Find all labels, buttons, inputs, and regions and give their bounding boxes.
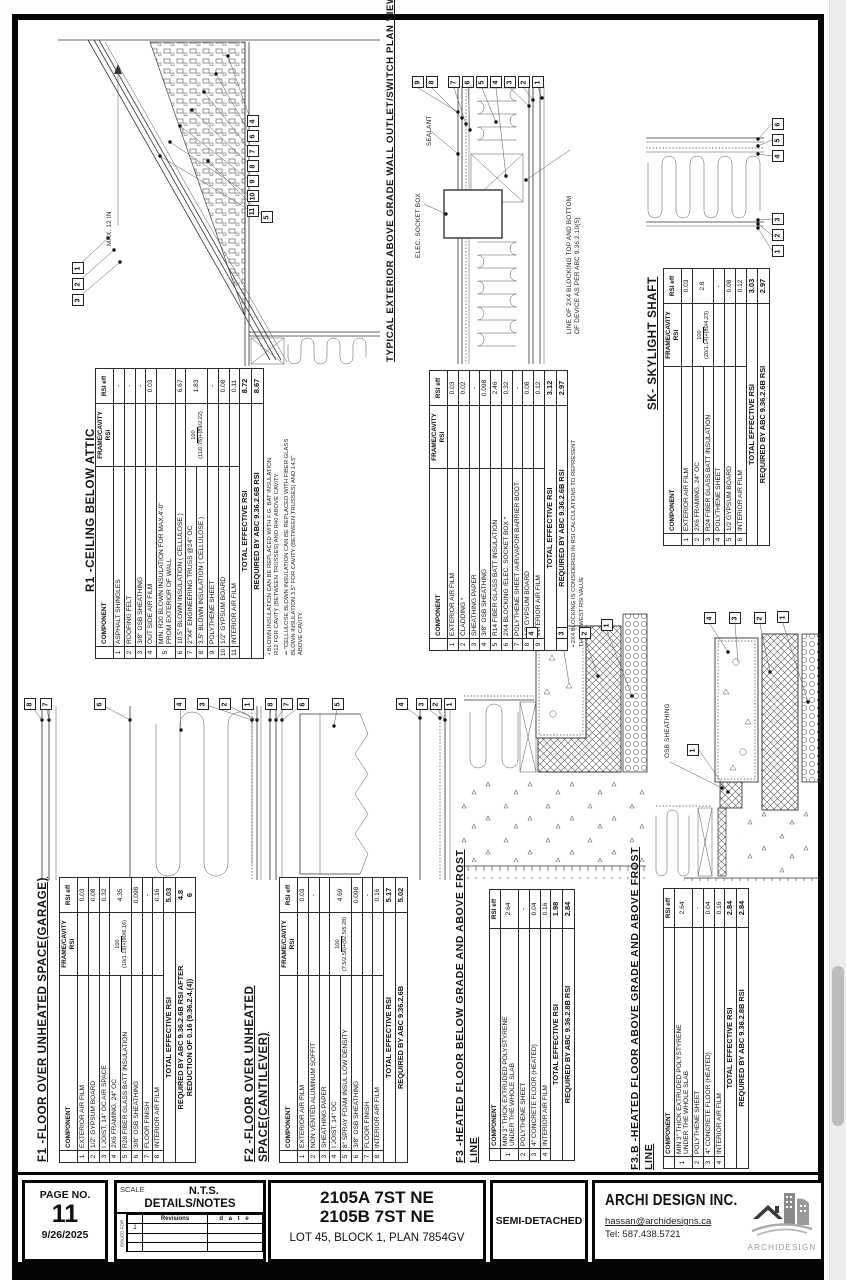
table-header-cell: COMPONENT (430, 469, 448, 639)
table-cell (480, 406, 491, 469)
table-cell: NON VENTED ALUMINUM SOFFIT (308, 976, 319, 1151)
table-cell: 5 (491, 639, 502, 651)
table-cell: POLYTHENE SHEET (693, 928, 704, 1157)
table-cell: POLYTHENE SHEET /AIR/VAPOR BARRIER BOOT (512, 469, 523, 639)
callout-2: 2 (219, 698, 231, 710)
table-cell: 1 (500, 1149, 519, 1161)
table-cell: FLOOR FINISH (362, 976, 373, 1151)
table-footer-value: 3.03 (746, 269, 758, 304)
callout-1: 1 (687, 744, 699, 756)
table-cell: 0.12 (534, 371, 545, 406)
table-header-cell (430, 639, 448, 651)
table-cell: OUT SIDE AIR FILM (146, 467, 157, 647)
table-cell: EXTERIOR AIR FILM (78, 976, 89, 1151)
table-footer-label: TOTAL EFFECTIVE RSI (725, 928, 737, 1169)
callout-10: 10 (247, 190, 259, 202)
table-header-cell: COMPONENT (96, 467, 114, 647)
table-footer-label: REQUIRED BY ABC 9.36.2.6B RSI (252, 404, 264, 659)
table-cell: 0.16 (153, 878, 164, 913)
table-footer-value: 1.98 (551, 890, 563, 929)
table-footer-label: TOTAL EFFECTIVE RSI (240, 404, 252, 659)
rev-date-cell (208, 1224, 263, 1233)
table-header-cell: FRAME/CAVITY RSI (60, 913, 78, 976)
table-cell: 4 (110, 1151, 121, 1163)
table-cell: 1 (114, 647, 125, 659)
table-cell: 0.098 (351, 878, 362, 913)
table-cell: 0.16 (373, 878, 384, 913)
f3b-table: COMPONENTRSI eff1MIN 3" THICK EXTRUDED P… (663, 888, 749, 1169)
assembly-table: COMPONENTRSI eff1MIN 3" THICK EXTRUDED P… (663, 888, 749, 1169)
table-cell: 5 (157, 647, 176, 659)
table-cell: - (714, 269, 725, 304)
table-cell: 5 (121, 1151, 132, 1163)
callout-7: 7 (247, 145, 259, 157)
table-footer-value: 8.67 (252, 369, 264, 404)
table-header-cell (490, 1149, 501, 1161)
scrollbar-thumb[interactable] (832, 966, 844, 1126)
table-cell: 0.03 (448, 371, 459, 406)
table-cell: 0.04 (529, 890, 540, 929)
table-cell: 2.64 (500, 890, 519, 929)
table-cell: 7 (362, 1151, 373, 1163)
table-cell: 8 (197, 647, 208, 659)
table-cell: INTERIOR AIR FILM (735, 367, 746, 534)
table-footer-label: REQUIRED BY ABC 9.36.2.6B RSI (758, 304, 770, 546)
table-cell (157, 404, 176, 467)
assembly-table: COMPONENTFRAME/CAVITY RSIRSI eff1EXTERIO… (279, 877, 408, 1163)
table-cell: 0.098 (480, 371, 491, 406)
table-footer-value: 2.97 (556, 371, 568, 406)
table-cell (523, 406, 534, 469)
f3b-drawing (648, 592, 824, 888)
assembly-table: COMPONENTRSI eff1MIN 3" THICK EXTRUDED P… (489, 889, 575, 1161)
table-cell: I JOIST, 14" OC (330, 976, 341, 1151)
table-cell: 4" CONCRETE FLOOR (HEATED) (529, 929, 540, 1149)
callout-7: 7 (281, 698, 293, 710)
table-cell: 6 (735, 534, 746, 546)
titleblock-separator (18, 1172, 818, 1175)
assembly-table: COMPONENTFRAME/CAVITY RSIRSI eff1ASPHALT… (95, 368, 264, 659)
callout-4: 4 (704, 612, 716, 624)
rev-cell (143, 1242, 208, 1251)
table-cell: 4 (330, 1151, 341, 1163)
scale-label: SCALE (117, 1183, 145, 1194)
table-header-cell: COMPONENT (60, 976, 78, 1151)
callout-8: 8 (426, 76, 438, 88)
table-cell: 1/2" GYPSUM BOARD (88, 976, 99, 1151)
r1-table: COMPONENTFRAME/CAVITY RSIRSI eff1ASPHALT… (95, 368, 308, 659)
table-cell: POLYTHENE SHEET (207, 467, 218, 647)
table-footer-label: REQUIRED BY ABC 9.36.2.6B (395, 913, 407, 1163)
table-header-cell (280, 1151, 298, 1163)
assembly-table: COMPONENTFRAME/CAVITY RSIRSI eff1EXTERIO… (59, 877, 196, 1163)
table-cell: - (519, 890, 530, 929)
table-footer-label: TOTAL EFFECTIVE RSI (746, 304, 758, 546)
table-header-cell: RSI eff (60, 878, 78, 913)
callout-3: 3 (729, 612, 741, 624)
table-header-cell (664, 534, 682, 546)
table-header-cell: RSI eff (490, 890, 501, 929)
table-cell: 2 (519, 1149, 530, 1161)
table-cell: - (124, 369, 135, 404)
scale-value: N.T.S. (145, 1183, 263, 1197)
table-cell: 4 (714, 534, 725, 546)
table-header-cell: COMPONENT (664, 367, 682, 534)
callout-6: 6 (297, 698, 309, 710)
table-cell (319, 878, 330, 913)
address-line-2: 2105B 7ST NE (271, 1207, 483, 1226)
table-cell: 0.08 (725, 269, 736, 304)
table-cell: 0.12 (735, 269, 746, 304)
table-cell: 11 (229, 647, 240, 659)
f1-table: COMPONENTFRAME/CAVITY RSIRSI eff1EXTERIO… (59, 877, 196, 1163)
callout-8: 8 (247, 160, 259, 172)
table-cell: ASPHALT SHINGLES (114, 467, 125, 647)
table-cell: SHEATHING PAPER (469, 469, 480, 639)
rev-cell (143, 1233, 208, 1242)
table-cell: 0.098 (131, 878, 142, 913)
callout-5: 5 (261, 211, 273, 223)
table-cell: - (207, 369, 218, 404)
table-header-cell (664, 1157, 675, 1169)
wall-plan-drawing (406, 72, 624, 372)
table-cell: MIN 3" THICK EXTRUDED POLYSTYRENE UNDER … (500, 929, 519, 1149)
callout-2: 2 (72, 278, 84, 290)
table-cell (99, 913, 110, 976)
table-cell: 4 (480, 639, 491, 651)
callout-3: 3 (504, 76, 516, 88)
table-cell: 8 (373, 1151, 384, 1163)
rev-cell (143, 1224, 208, 1233)
callout-1: 1 (601, 619, 613, 631)
table-cell: 7 (512, 639, 523, 651)
table-header-cell (96, 647, 114, 659)
assembly-table: COMPONENTFRAME/CAVITY RSIRSI eff1EXTERIO… (663, 268, 770, 546)
table-footer-value: 5.02 (395, 878, 407, 913)
table-cell: 2.46 (491, 371, 502, 406)
callout-1: 1 (72, 262, 84, 274)
callout-3: 3 (772, 213, 784, 225)
table-cell: 6 (131, 1151, 142, 1163)
table-cell: - (512, 371, 523, 406)
table-cell (469, 406, 480, 469)
table-cell: 0.02 (458, 371, 469, 406)
revisions-grid: ISSUED FOR Revisions d a t e 1 (117, 1212, 263, 1252)
callout-2: 2 (518, 76, 530, 88)
table-cell: - (362, 878, 373, 913)
callout-1: 1 (772, 245, 784, 257)
table-cell: 0.11 (229, 369, 240, 404)
rev-row-number: 1 (128, 1224, 143, 1233)
legal-description: LOT 45, BLOCK 1, PLAN 7854GV (271, 1232, 483, 1244)
f3-table: COMPONENTRSI eff1MIN 3" THICK EXTRUDED P… (489, 889, 575, 1161)
company-email: hassan@archidesigns.ca (605, 1216, 743, 1227)
table-cell: 1 (298, 1151, 309, 1163)
table-cell: R14 FIBER GLASS BATT INSULATION (491, 469, 502, 639)
table-cell (319, 913, 330, 976)
revisions-header: Revisions (143, 1215, 208, 1224)
table-cell: 100(7.5/2.56)+(92.5/5.28) (330, 913, 352, 976)
table-cell (146, 404, 157, 467)
table-cell (735, 304, 746, 367)
page-number: 11 (25, 1201, 105, 1227)
table-cell: 9 (207, 647, 218, 659)
table-cell: 3 (135, 647, 146, 659)
table-notes: • BLOWN INSULATION CAN BE REPLACED WITH … (267, 368, 306, 659)
callout-4: 4 (526, 627, 538, 639)
skylight-drawing (640, 112, 815, 262)
table-cell: MIN. R20 BLOWN INSULATION FOR MAX.4'-0" … (157, 467, 176, 647)
table-cell: INTERIOR AIR FILM (534, 469, 545, 639)
callout-9: 9 (247, 175, 259, 187)
table-cell (351, 913, 362, 976)
table-cell: MIN 3" THICK EXTRUDED POLYSTYRENE UNDER … (674, 928, 693, 1157)
table-cell: EXTERIOR AIR FILM (682, 367, 693, 534)
table-footer-value: 2.84 (563, 890, 575, 929)
table-cell (175, 404, 186, 467)
table-cell (207, 404, 218, 467)
table-cell: POLYTHENE SHEET (519, 929, 530, 1149)
table-header-cell: RSI eff (664, 269, 682, 304)
sk-table: COMPONENTFRAME/CAVITY RSIRSI eff1EXTERIO… (663, 268, 770, 546)
table-footer-label: TOTAL EFFECTIVE RSI (544, 406, 556, 651)
table-cell: - (693, 889, 704, 928)
table-cell: 5 (725, 534, 736, 546)
table-cell: 8" SPRAY FOAM INSUL LOW DENSITY (341, 976, 352, 1151)
table-cell: 4.35 (110, 878, 132, 913)
table-footer-value: 2.84 (725, 889, 737, 928)
table-cell (682, 304, 693, 367)
table-cell: ROOFING FELT (124, 467, 135, 647)
callout-4: 4 (396, 698, 408, 710)
table-cell: 0.03 (682, 269, 693, 304)
table-cell: 1 (674, 1157, 693, 1169)
building-type-box: SEMI-DETACHED (490, 1180, 588, 1262)
table-cell: R28 FIBER GLASS BATT INSULATION (121, 976, 132, 1151)
table-cell: 2X6 FRAMING, 24" OC (110, 976, 121, 1151)
table-footer-label: TOTAL EFFECTIVE RSI (384, 913, 396, 1163)
table-cell: 3 (529, 1149, 540, 1161)
callout-11: 11 (247, 205, 259, 217)
table-cell (512, 406, 523, 469)
table-cell: 1/2" GYPSUM BOARD (218, 467, 229, 647)
table-cell: - (142, 878, 153, 913)
table-cell (218, 404, 229, 467)
table-header-cell: FRAME/CAVITY RSI (430, 406, 448, 469)
callout-9: 9 (412, 76, 424, 88)
table-cell: INTERIOR AIR FILM (373, 976, 384, 1151)
logo-wordmark: ARCHIDESIGN (743, 1243, 821, 1252)
table-cell: INTERIOR AIR FILM (714, 928, 725, 1157)
table-cell: - (469, 371, 480, 406)
callout-5: 5 (476, 76, 488, 88)
table-cell (373, 913, 384, 976)
scale-notes-box: SCALE N.T.S. DETAILS/NOTES ISSUED FOR Re… (114, 1180, 266, 1262)
table-cell (448, 406, 459, 469)
table-cell: 0.03 (146, 369, 157, 404)
table-cell: 2 (692, 534, 703, 546)
table-cell: 3 (469, 639, 480, 651)
callout-6: 6 (247, 130, 259, 142)
table-footer-value: 5.03 (164, 878, 176, 913)
table-cell (131, 913, 142, 976)
callout-2: 2 (772, 229, 784, 241)
f2-title: F2 -FLOOR OVER UNHEATED SPACE(CANTILEVER… (243, 922, 271, 1162)
callout-5: 5 (332, 698, 344, 710)
issued-for-label: ISSUED FOR (117, 1214, 127, 1252)
callout-4: 4 (174, 698, 186, 710)
table-cell: INTERIOR AIR FILM (153, 976, 164, 1151)
table-cell: - (135, 369, 146, 404)
f3-title: F3 -HEATED FLOOR BELOW GRADE AND ABOVE F… (453, 753, 481, 1163)
table-cell: 7 (186, 647, 197, 659)
callout-3: 3 (72, 294, 84, 306)
rev-date-cell (208, 1233, 263, 1242)
sheet-name: DETAILS/NOTES (117, 1197, 263, 1212)
table-footer-value: 5.17 (384, 878, 396, 913)
callout-8: 8 (24, 698, 36, 710)
sheet-bottom-bar (12, 1262, 824, 1280)
table-cell: 4" CONCRETE FLOOR (HEATED) (703, 928, 714, 1157)
table-cell: 6.67 (175, 369, 186, 404)
rev-row-number (128, 1233, 143, 1242)
project-address-box: 2105A 7ST NE 2105B 7ST NE LOT 45, BLOCK … (268, 1180, 486, 1262)
table-notes: • 2X4 BLOCKING IS CONSIDERED IN RSI CALC… (571, 370, 586, 651)
table-header-cell: RSI eff (96, 369, 114, 404)
table-cell: 3 (99, 1151, 110, 1163)
table-cell: 2"X4" ENGINEERING TRUSS @24" OC (186, 467, 197, 647)
table-cell: 0.03 (78, 878, 89, 913)
table-cell: 100(11/0.76)+(89/2.22) (186, 404, 208, 467)
table-header-cell: FRAME/CAVITY RSI (96, 404, 114, 467)
archidesign-logo-icon (751, 1189, 813, 1237)
table-cell: 10 (218, 647, 229, 659)
table-cell (308, 913, 319, 976)
table-cell: 0.16 (714, 889, 725, 928)
table-header-cell: FRAME/CAVITY RSI (664, 304, 682, 367)
table-cell: 9 (534, 639, 545, 651)
table-cell: 7 (142, 1151, 153, 1163)
callout-2: 2 (430, 698, 442, 710)
f3b-osb-label: OSB SHEATHING (664, 686, 672, 758)
rev-row-number (128, 1242, 143, 1251)
table-cell (88, 913, 99, 976)
building-type: SEMI-DETACHED (496, 1215, 583, 1227)
table-cell: INTERIOR AIR FILM (229, 467, 240, 647)
rev-date-cell (208, 1242, 263, 1251)
table-cell: 6 (351, 1151, 362, 1163)
sheet-page: MAX. 12 IN SEALANT ELEC. SOCKET BOX LINE… (0, 0, 846, 1280)
table-footer-label: REQUIRED BY ABC 9.36.2.6B RSI (556, 406, 568, 651)
table-cell (362, 913, 373, 976)
table-cell (714, 304, 725, 367)
table-cell (142, 913, 153, 976)
callout-3: 3 (556, 627, 568, 639)
table-cell: 3/8" OSB SHEATHING (351, 976, 362, 1151)
callout-5: 5 (772, 134, 784, 146)
assembly-table: COMPONENTFRAME/CAVITY RSIRSI eff1EXTERIO… (429, 370, 568, 651)
table-cell (153, 913, 164, 976)
callout-3: 3 (197, 698, 209, 710)
table-cell: 2 (308, 1151, 319, 1163)
callout-1: 1 (532, 76, 544, 88)
callout-1: 1 (242, 698, 254, 710)
table-cell: 1 (448, 639, 459, 651)
table-cell: R24 FIBER GLASS BATT INSULATION (703, 367, 714, 534)
company-phone: Tel: 587.438.5721 (605, 1229, 743, 1240)
table-footer-label: TOTAL EFFECTIVE RSI (551, 929, 563, 1161)
table-cell: 8 (153, 1151, 164, 1163)
table-cell (298, 913, 309, 976)
table-header-cell: COMPONENT (664, 928, 675, 1157)
table-cell: I JOIST, 14" OC AIR SPACE (99, 976, 110, 1151)
sheet-date: 9/26/2025 (25, 1229, 105, 1241)
f2-table: COMPONENTFRAME/CAVITY RSIRSI eff1EXTERIO… (279, 877, 408, 1163)
table-cell: 2.8 (692, 269, 714, 304)
table-footer-value: 2.97 (758, 269, 770, 304)
table-cell: 0.04 (703, 889, 714, 928)
table-cell: 3 (703, 534, 714, 546)
callout-8: 8 (265, 698, 277, 710)
table-cell: 2 (693, 1157, 704, 1169)
wall-title: TYPICAL EXTERIOR ABOVE GRADE WALL OUTLET… (384, 70, 398, 362)
company-name: ARCHI DESIGN INC. (605, 1191, 743, 1208)
callout-2: 2 (579, 627, 591, 639)
table-footer-value: 2.84 (737, 889, 749, 928)
table-cell: 2X4 BLOCKING /ELEC. SOCKET BOX * (501, 469, 512, 639)
table-footer-label: REQUIRED BY ABC 9.36.2.6B RSI AFTER REDU… (175, 913, 195, 1163)
table-cell (501, 406, 512, 469)
table-cell: 4 (540, 1149, 551, 1161)
table-footer-value: 8.72 (240, 369, 252, 404)
table-cell (491, 406, 502, 469)
table-cell: 3 (703, 1157, 714, 1169)
table-header-cell: RSI eff (664, 889, 675, 928)
table-header-cell: COMPONENT (280, 976, 298, 1151)
table-cell: 8 (523, 639, 534, 651)
table-footer-label: REQUIRED BY ABC 9.36.2.8B RSI (563, 929, 575, 1161)
table-header-cell: RSI eff (430, 371, 448, 406)
table-cell: 3/8" OSB SHEATHING (480, 469, 491, 639)
table-cell: 1/2 GYPSUM BOARD (523, 469, 534, 639)
table-cell: 1 (78, 1151, 89, 1163)
table-cell: FLOOR FINISH (142, 976, 153, 1151)
table-footer-label: REQUIRED BY ABC 9.36.2.8B RSI (737, 928, 749, 1169)
table-cell: 0.32 (501, 371, 512, 406)
table-cell: POLYTHENE SHEET (714, 367, 725, 534)
callout-6: 6 (462, 76, 474, 88)
callout-4: 4 (772, 150, 784, 162)
table-footer-value: 3.12 (544, 371, 556, 406)
table-cell: INTERIOR AIR FILM (540, 929, 551, 1149)
table-cell: 3/8" OSB SHEATHING (135, 467, 146, 647)
table-cell: CLADDING * (458, 469, 469, 639)
table-cell: 10.5" BLOWN INSULATION ( CELLULOSE ) (175, 467, 186, 647)
f3b-title: F3.B -HEATED FLOOR ABOVE GRADE AND ABOVE… (628, 752, 656, 1170)
table-cell (157, 369, 176, 404)
table-cell: 0.32 (99, 878, 110, 913)
company-box: ARCHI DESIGN INC. hassan@archidesigns.ca… (592, 1180, 824, 1262)
table-cell: 6 (175, 647, 186, 659)
table-cell (114, 404, 125, 467)
callout-4: 4 (490, 76, 502, 88)
table-cell (229, 404, 240, 467)
table-cell (78, 913, 89, 976)
table-cell: 2.64 (674, 889, 693, 928)
callout-6: 6 (772, 118, 784, 130)
table-header-cell: RSI eff (280, 878, 298, 913)
address-line-1: 2105A 7ST NE (271, 1188, 483, 1207)
